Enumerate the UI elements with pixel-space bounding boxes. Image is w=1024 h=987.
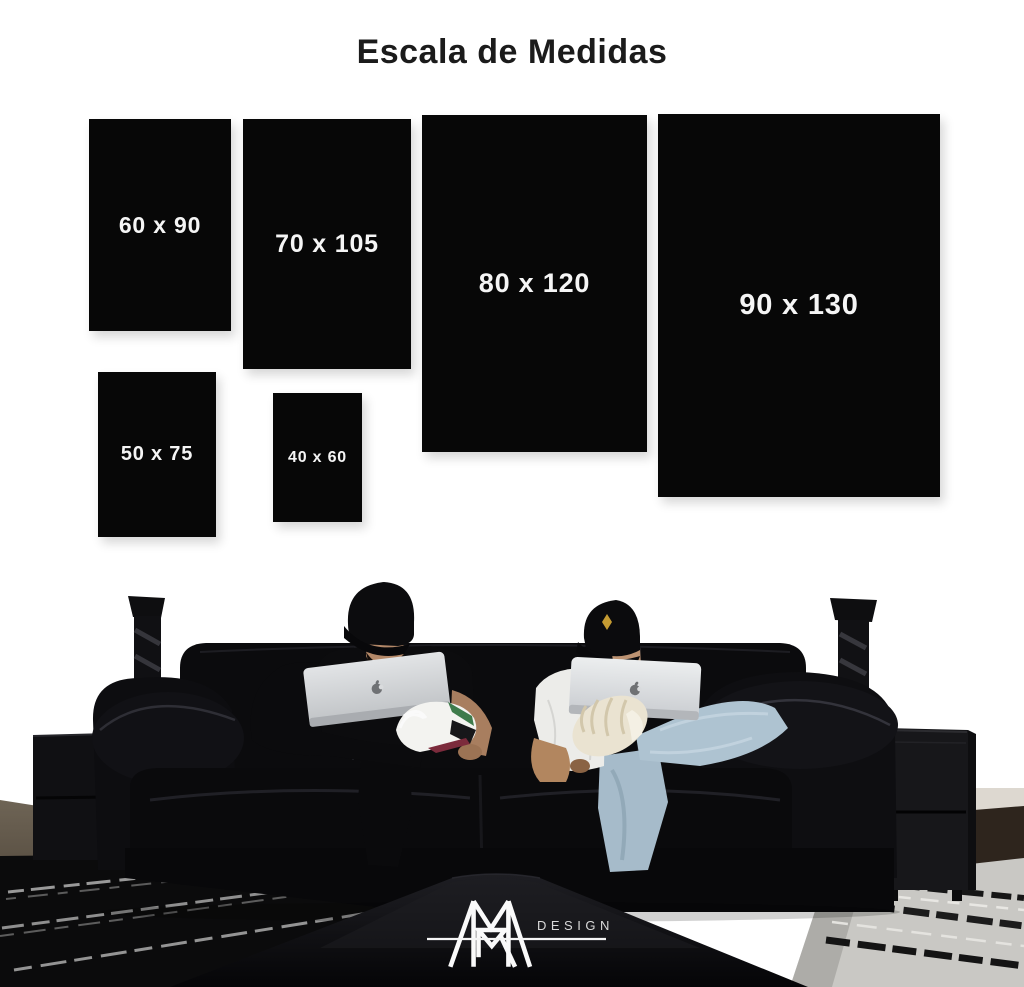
page-title: Escala de Medidas xyxy=(0,33,1024,72)
size-swatch-50x75: 50 x 75 xyxy=(98,372,216,537)
lifestyle-photo: DESIGN xyxy=(0,560,1024,987)
size-label: 50 x 75 xyxy=(121,443,193,466)
size-label: 90 x 130 xyxy=(739,289,858,322)
size-label: 40 x 60 xyxy=(288,449,347,467)
size-label: 60 x 90 xyxy=(119,212,201,239)
size-scale-poster: Escala de Medidas 60 x 90 70 x 105 80 x … xyxy=(0,0,1024,987)
size-label: 80 x 120 xyxy=(479,268,591,299)
size-label: 70 x 105 xyxy=(275,230,379,259)
size-swatch-40x60: 40 x 60 xyxy=(273,393,362,522)
size-swatch-90x130: 90 x 130 xyxy=(658,114,940,497)
size-swatch-80x120: 80 x 120 xyxy=(422,115,647,452)
size-swatch-60x90: 60 x 90 xyxy=(89,119,231,331)
size-swatch-70x105: 70 x 105 xyxy=(243,119,411,369)
logo-design-label: DESIGN xyxy=(537,918,614,933)
